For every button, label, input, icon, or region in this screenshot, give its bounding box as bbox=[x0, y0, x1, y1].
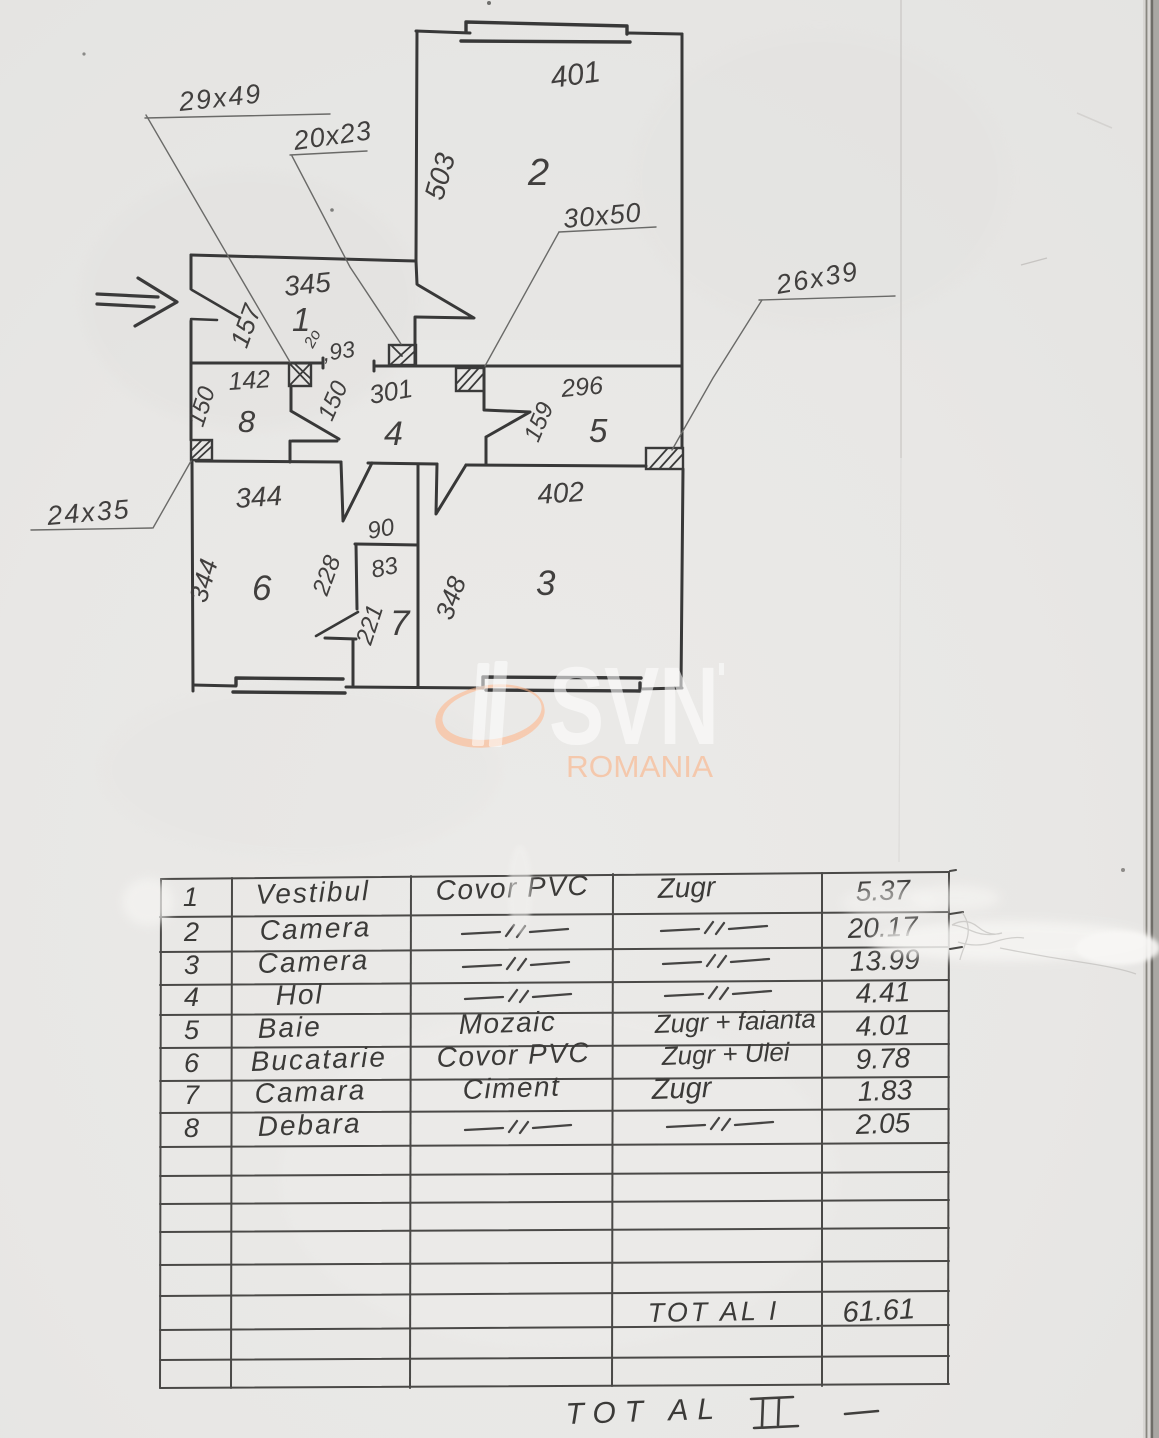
svg-text:7: 7 bbox=[184, 1080, 200, 1110]
svg-text:296: 296 bbox=[559, 371, 604, 403]
svg-text:345: 345 bbox=[282, 266, 332, 302]
svg-text:4: 4 bbox=[384, 415, 403, 453]
svg-text:7: 7 bbox=[390, 604, 411, 643]
svg-text:TOT AL I: TOT AL I bbox=[648, 1296, 780, 1328]
svg-text:4.41: 4.41 bbox=[855, 976, 911, 1009]
svg-text:90: 90 bbox=[365, 514, 397, 545]
svg-text:4.01: 4.01 bbox=[855, 1009, 911, 1042]
svg-text:1: 1 bbox=[183, 882, 198, 912]
svg-text:2.05: 2.05 bbox=[854, 1107, 911, 1140]
svg-text:5: 5 bbox=[589, 412, 608, 449]
svg-text:4: 4 bbox=[184, 982, 199, 1012]
svg-text:Camara: Camara bbox=[254, 1074, 367, 1109]
svg-text:Baie: Baie bbox=[257, 1011, 322, 1044]
svg-text:2: 2 bbox=[183, 917, 199, 947]
svg-text:3: 3 bbox=[536, 564, 556, 603]
svg-text:Zugr: Zugr bbox=[656, 871, 717, 904]
svg-text:Vestibul: Vestibul bbox=[255, 875, 371, 910]
svg-text:Camera: Camera bbox=[259, 911, 372, 946]
svg-text:401: 401 bbox=[548, 55, 602, 95]
svg-text:8: 8 bbox=[238, 404, 256, 439]
svg-text:Mozaic: Mozaic bbox=[458, 1006, 557, 1040]
svg-text:TOT AL: TOT AL bbox=[565, 1393, 723, 1431]
svg-text:6: 6 bbox=[252, 569, 272, 608]
svg-text:5: 5 bbox=[184, 1015, 200, 1045]
svg-text:9.78: 9.78 bbox=[855, 1042, 911, 1075]
svg-text:Hol: Hol bbox=[275, 978, 324, 1011]
svg-text:ROMANIA: ROMANIA bbox=[566, 749, 713, 784]
svg-text:142: 142 bbox=[227, 365, 271, 396]
svg-text:402: 402 bbox=[536, 476, 585, 510]
svg-text:Zugr + faianta: Zugr + faianta bbox=[653, 1003, 816, 1039]
svg-text:Camera: Camera bbox=[257, 944, 370, 979]
svg-text:,93: ,93 bbox=[321, 336, 356, 366]
svg-text:Debara: Debara bbox=[257, 1107, 362, 1142]
svg-text:6: 6 bbox=[184, 1048, 200, 1078]
svg-text:8: 8 bbox=[184, 1113, 199, 1143]
svg-text:Covor PVC: Covor PVC bbox=[436, 1037, 591, 1073]
svg-text:Ciment: Ciment bbox=[462, 1071, 561, 1105]
svg-text:Zugr: Zugr bbox=[650, 1072, 713, 1106]
svg-text:1.83: 1.83 bbox=[857, 1074, 913, 1107]
svg-text:344: 344 bbox=[234, 480, 283, 514]
svg-text:2: 2 bbox=[527, 152, 549, 194]
svg-text:61.61: 61.61 bbox=[842, 1293, 916, 1329]
svg-text:Bucatarie: Bucatarie bbox=[250, 1041, 387, 1077]
svg-text:Zugr + Ulei: Zugr + Ulei bbox=[660, 1037, 791, 1072]
svg-text:3: 3 bbox=[184, 950, 199, 980]
